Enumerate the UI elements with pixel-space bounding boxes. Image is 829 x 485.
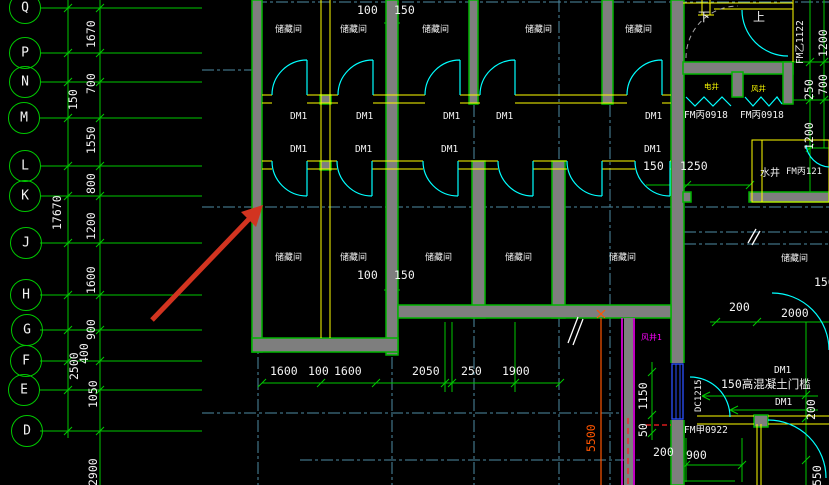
room-label: 储藏间	[505, 254, 532, 263]
dim-text: 150	[394, 270, 415, 282]
dim-text: 1200	[818, 29, 829, 57]
dim-text: 150	[394, 5, 415, 17]
axis-bubble-label: F	[22, 355, 30, 368]
dim-text: 1200	[86, 212, 98, 240]
axis-bubble-label: P	[21, 47, 29, 60]
dim-text: 2050	[412, 366, 440, 378]
dim-text: 1600	[86, 266, 98, 294]
door-tag: DM1	[356, 112, 373, 122]
dim-text: 1600	[270, 366, 298, 378]
walls	[252, 0, 829, 485]
room-label: 储藏间	[781, 255, 808, 264]
red-annotation-arrow	[152, 205, 263, 320]
door-swings	[272, 10, 829, 478]
axis-bubble-label: H	[22, 289, 30, 302]
dim-text: 100	[357, 5, 378, 17]
note-threshold: 150高混凝土门槛	[721, 379, 811, 391]
axis-bubble-label: E	[20, 384, 28, 397]
room-label-vent-shaft: 风井1	[641, 334, 662, 342]
dim-text: 700	[86, 73, 98, 94]
door-tag: DM1	[496, 112, 513, 122]
door-tag: FM甲0922	[684, 426, 728, 436]
dim-text: 1900	[502, 366, 530, 378]
dim-text: 550	[812, 465, 824, 485]
cad-canvas[interactable]: Q P N M L K J H G F E D 1670 700 150 155…	[0, 0, 829, 485]
door-tag: DM1	[290, 145, 307, 155]
axis-grid	[9, 0, 203, 485]
door-tag: DM1	[644, 145, 661, 155]
axis-bubble-label: Q	[21, 2, 29, 15]
axis-bubble-label: K	[21, 190, 29, 203]
dim-text: 800	[86, 173, 98, 194]
door-tag: DM1	[355, 145, 372, 155]
dim-text: 1600	[334, 366, 362, 378]
door-tag: FM丙0918	[740, 111, 784, 121]
drawing-geometry	[0, 0, 829, 485]
door-tag: FM丙0918	[684, 111, 728, 121]
door-tag: DC1215	[695, 379, 704, 412]
dim-text: 2000	[781, 308, 809, 320]
dim-text: 150	[643, 161, 664, 173]
room-label: 储藏间	[275, 254, 302, 263]
axis-bubble-label: D	[23, 425, 31, 438]
stair-down-label: 下	[698, 11, 710, 23]
door-tag: DM1	[775, 398, 792, 408]
axis-bubble-label: N	[21, 76, 29, 89]
room-label-air-shaft: 风井	[751, 85, 766, 93]
window-blue	[670, 363, 685, 420]
dim-text: 100	[357, 270, 378, 282]
door-tag: FM丙121	[786, 168, 822, 177]
dim-text: 200	[653, 447, 674, 459]
dim-text: 2500	[69, 352, 81, 380]
dim-text: 900	[86, 319, 98, 340]
dim-text: 1200	[804, 122, 816, 150]
door-tag: DM1	[645, 112, 662, 122]
room-label-water-shaft: 水井	[760, 169, 780, 179]
dim-text: 50	[638, 423, 650, 437]
dim-text: 2900	[88, 458, 100, 485]
dim-text: 200	[806, 399, 818, 420]
dim-text: 150	[68, 89, 80, 110]
room-label-elec-shaft: 电井	[704, 83, 719, 91]
stair-dashed-arc	[686, 6, 738, 58]
door-tag: FM乙1122	[796, 20, 806, 64]
dim-text: 1670	[86, 20, 98, 48]
axis-bubble-label: M	[20, 112, 28, 125]
dim-text: 1050	[88, 380, 100, 408]
dim-text: 900	[686, 450, 707, 462]
break-symbols	[568, 229, 760, 345]
room-label: 储藏间	[609, 254, 636, 263]
dim-text: 1550	[86, 126, 98, 154]
dim-text: 1150	[638, 382, 650, 410]
room-label: 储藏间	[275, 26, 302, 35]
dim-text: 700	[818, 74, 829, 95]
room-label: 储藏间	[525, 26, 552, 35]
room-label: 储藏间	[625, 26, 652, 35]
stair-up-label: 上	[753, 11, 765, 23]
room-label: 储藏间	[425, 254, 452, 263]
axis-bubble-label: G	[23, 324, 31, 337]
dim-text: 250	[804, 79, 816, 100]
door-tag: DM1	[774, 366, 791, 376]
axis-bubble-label: L	[21, 160, 29, 173]
dim-text: 200	[729, 302, 750, 314]
dim-text: 150	[814, 277, 829, 289]
door-tag: DM1	[290, 112, 307, 122]
dim-text: 1250	[680, 161, 708, 173]
door-tag: DM1	[441, 145, 458, 155]
dim-text: 250	[461, 366, 482, 378]
dim-text-shaft-height: 5500	[586, 424, 598, 452]
dim-text: 100	[308, 366, 329, 378]
door-tag: DM1	[443, 112, 460, 122]
axis-bubble-label: J	[22, 237, 30, 250]
room-label: 储藏间	[340, 26, 367, 35]
room-label: 储藏间	[422, 26, 449, 35]
dim-text: 17670	[52, 195, 64, 230]
room-label: 储藏间	[340, 254, 367, 263]
